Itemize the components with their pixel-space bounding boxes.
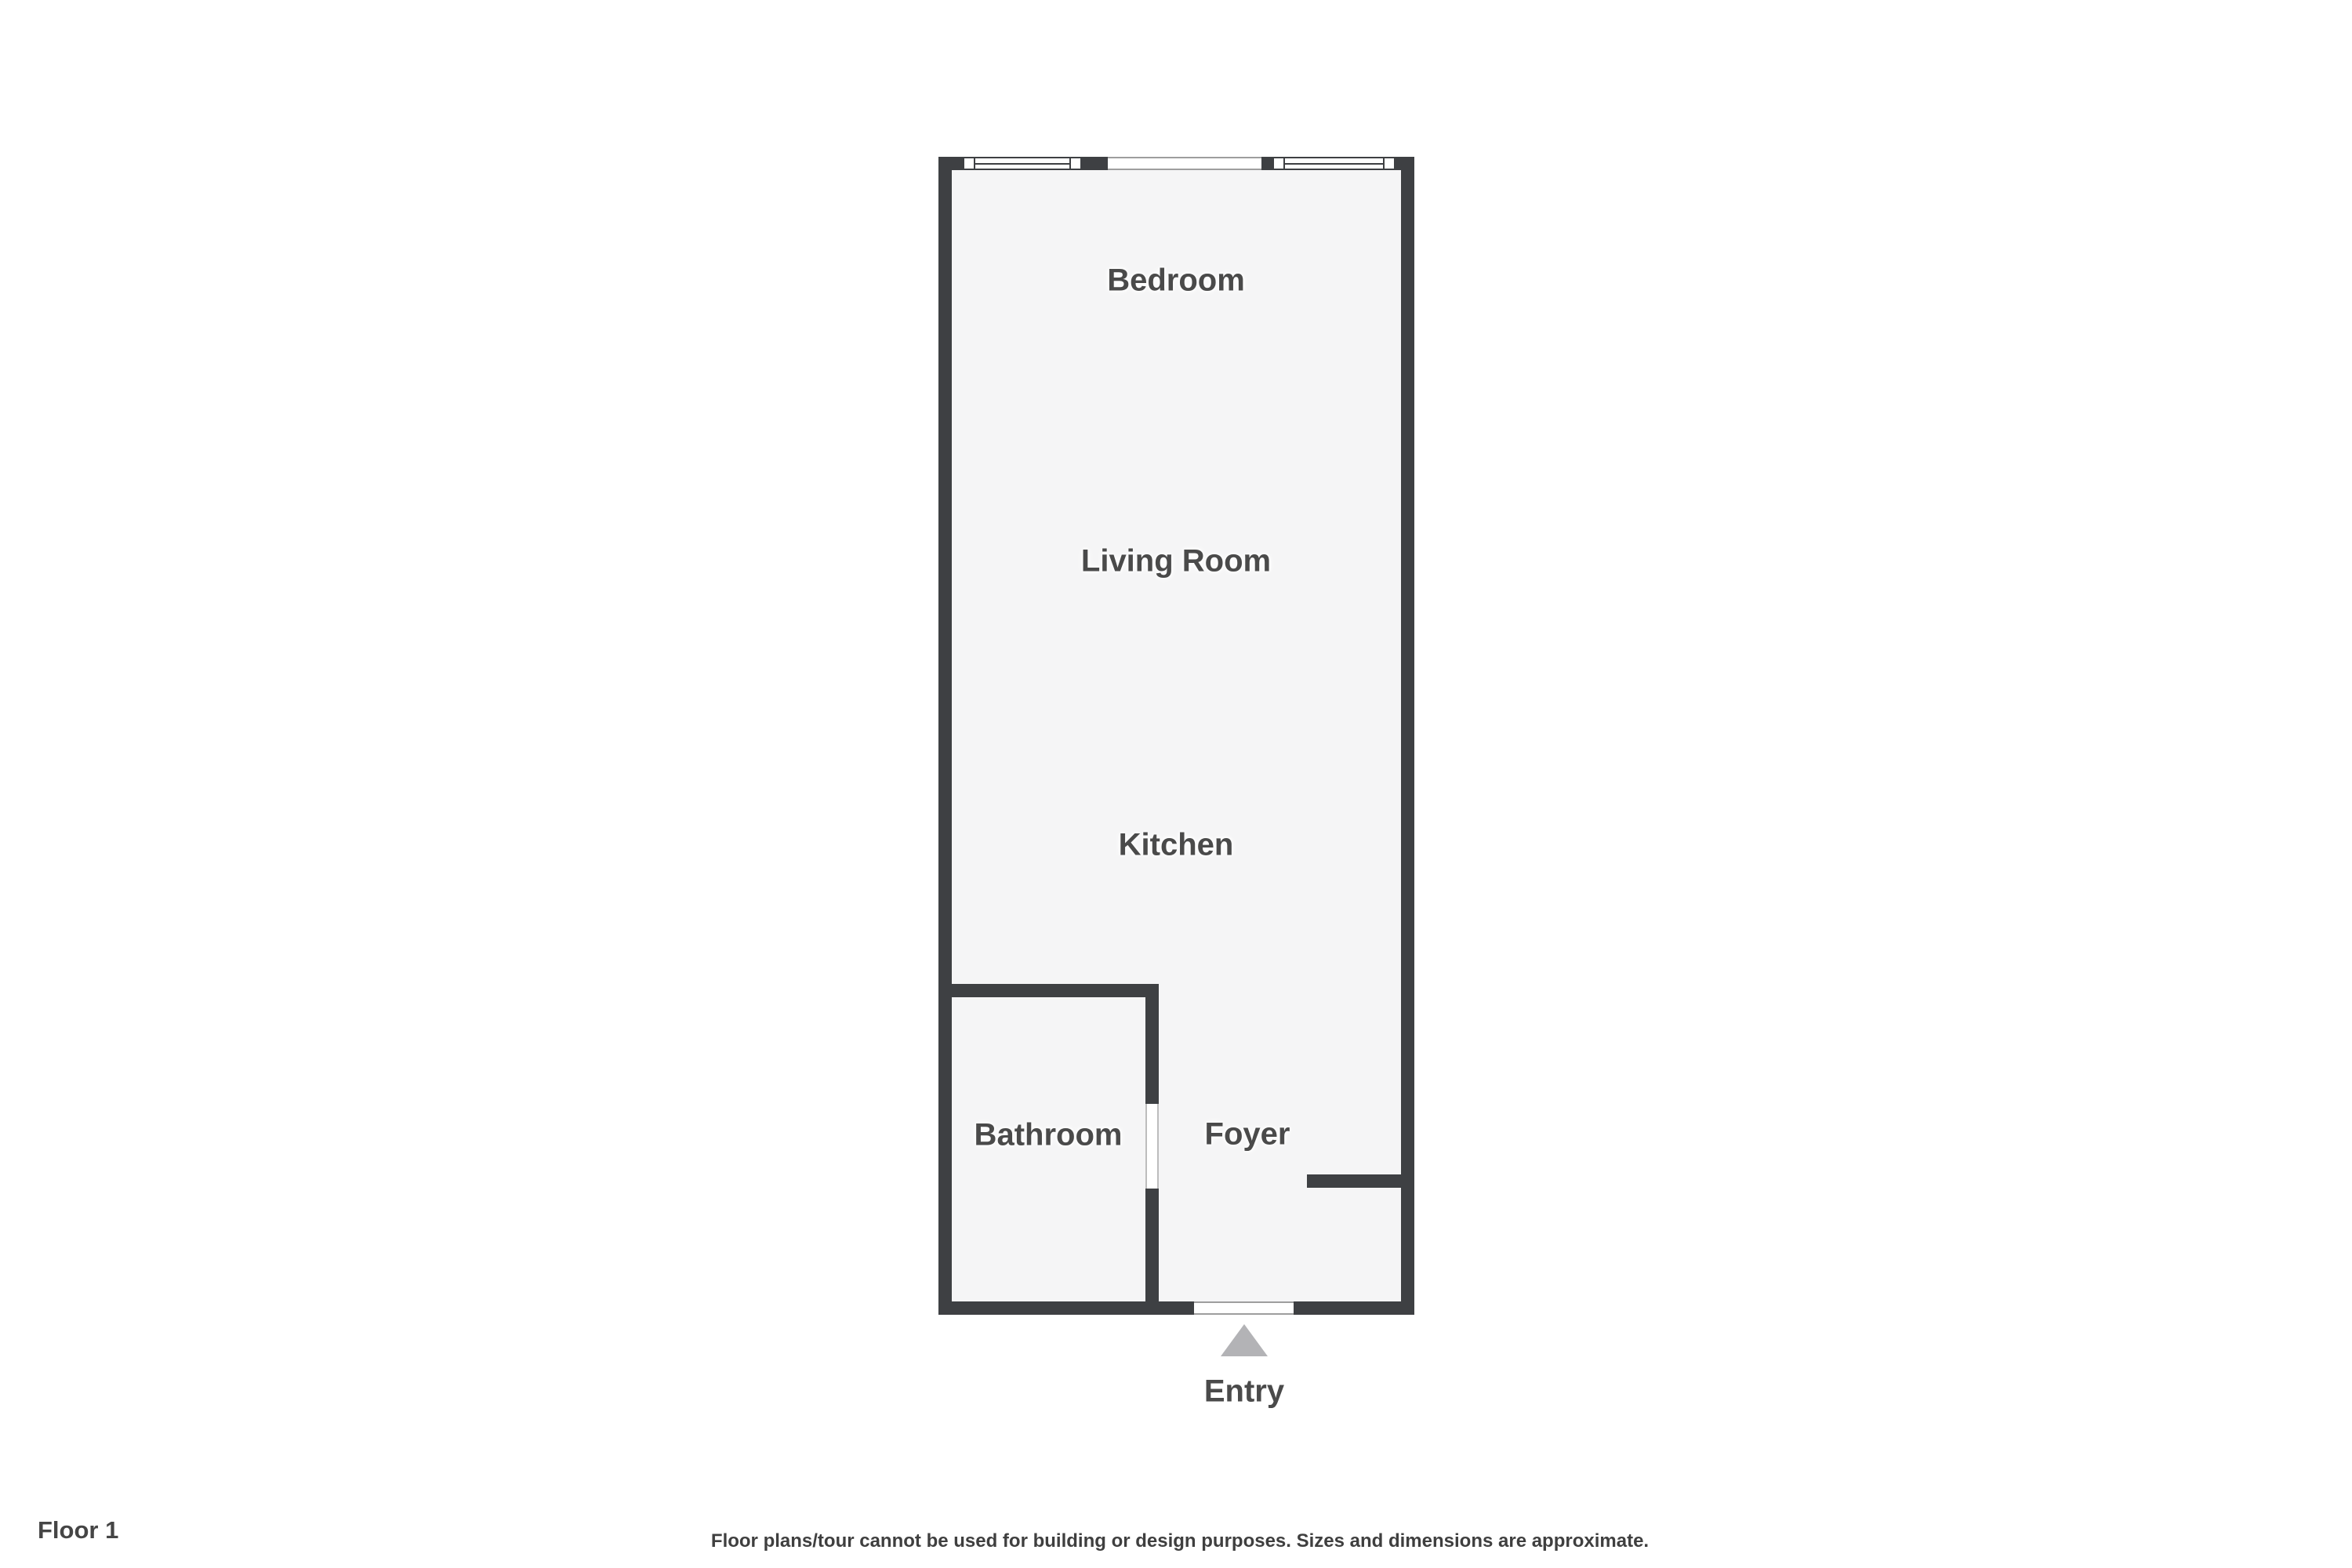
foyer-wall-stub bbox=[1307, 1174, 1401, 1188]
top-wall-opening bbox=[1108, 157, 1261, 170]
window-glass-line bbox=[1285, 163, 1383, 165]
bathroom-top-wall bbox=[952, 984, 1159, 997]
entry-door-opening bbox=[1194, 1301, 1294, 1315]
window-glass-line bbox=[975, 163, 1069, 165]
floor-label: Floor 1 bbox=[38, 1518, 118, 1542]
bathroom-door-opening bbox=[1145, 1104, 1159, 1189]
window-icon bbox=[963, 157, 1082, 170]
window-icon bbox=[1272, 157, 1396, 170]
entry-arrow-icon bbox=[1221, 1324, 1268, 1356]
room-label-bathroom: Bathroom bbox=[975, 1118, 1123, 1153]
bathroom-divider-wall-upper bbox=[1145, 997, 1159, 1104]
window-frame-line bbox=[1069, 158, 1071, 169]
bathroom-divider-wall-lower bbox=[1145, 1189, 1159, 1301]
room-label-foyer: Foyer bbox=[1205, 1117, 1290, 1152]
entry-label: Entry bbox=[1204, 1374, 1284, 1410]
room-label-kitchen: Kitchen bbox=[1119, 828, 1234, 863]
disclaimer-text: Floor plans/tour cannot be used for buil… bbox=[711, 1530, 1649, 1552]
floorplan-page: Bedroom Living Room Kitchen Bathroom Foy… bbox=[0, 0, 2352, 1568]
room-label-bedroom: Bedroom bbox=[1107, 263, 1245, 299]
room-label-living-room: Living Room bbox=[1081, 544, 1271, 579]
window-frame-line bbox=[1383, 158, 1385, 169]
